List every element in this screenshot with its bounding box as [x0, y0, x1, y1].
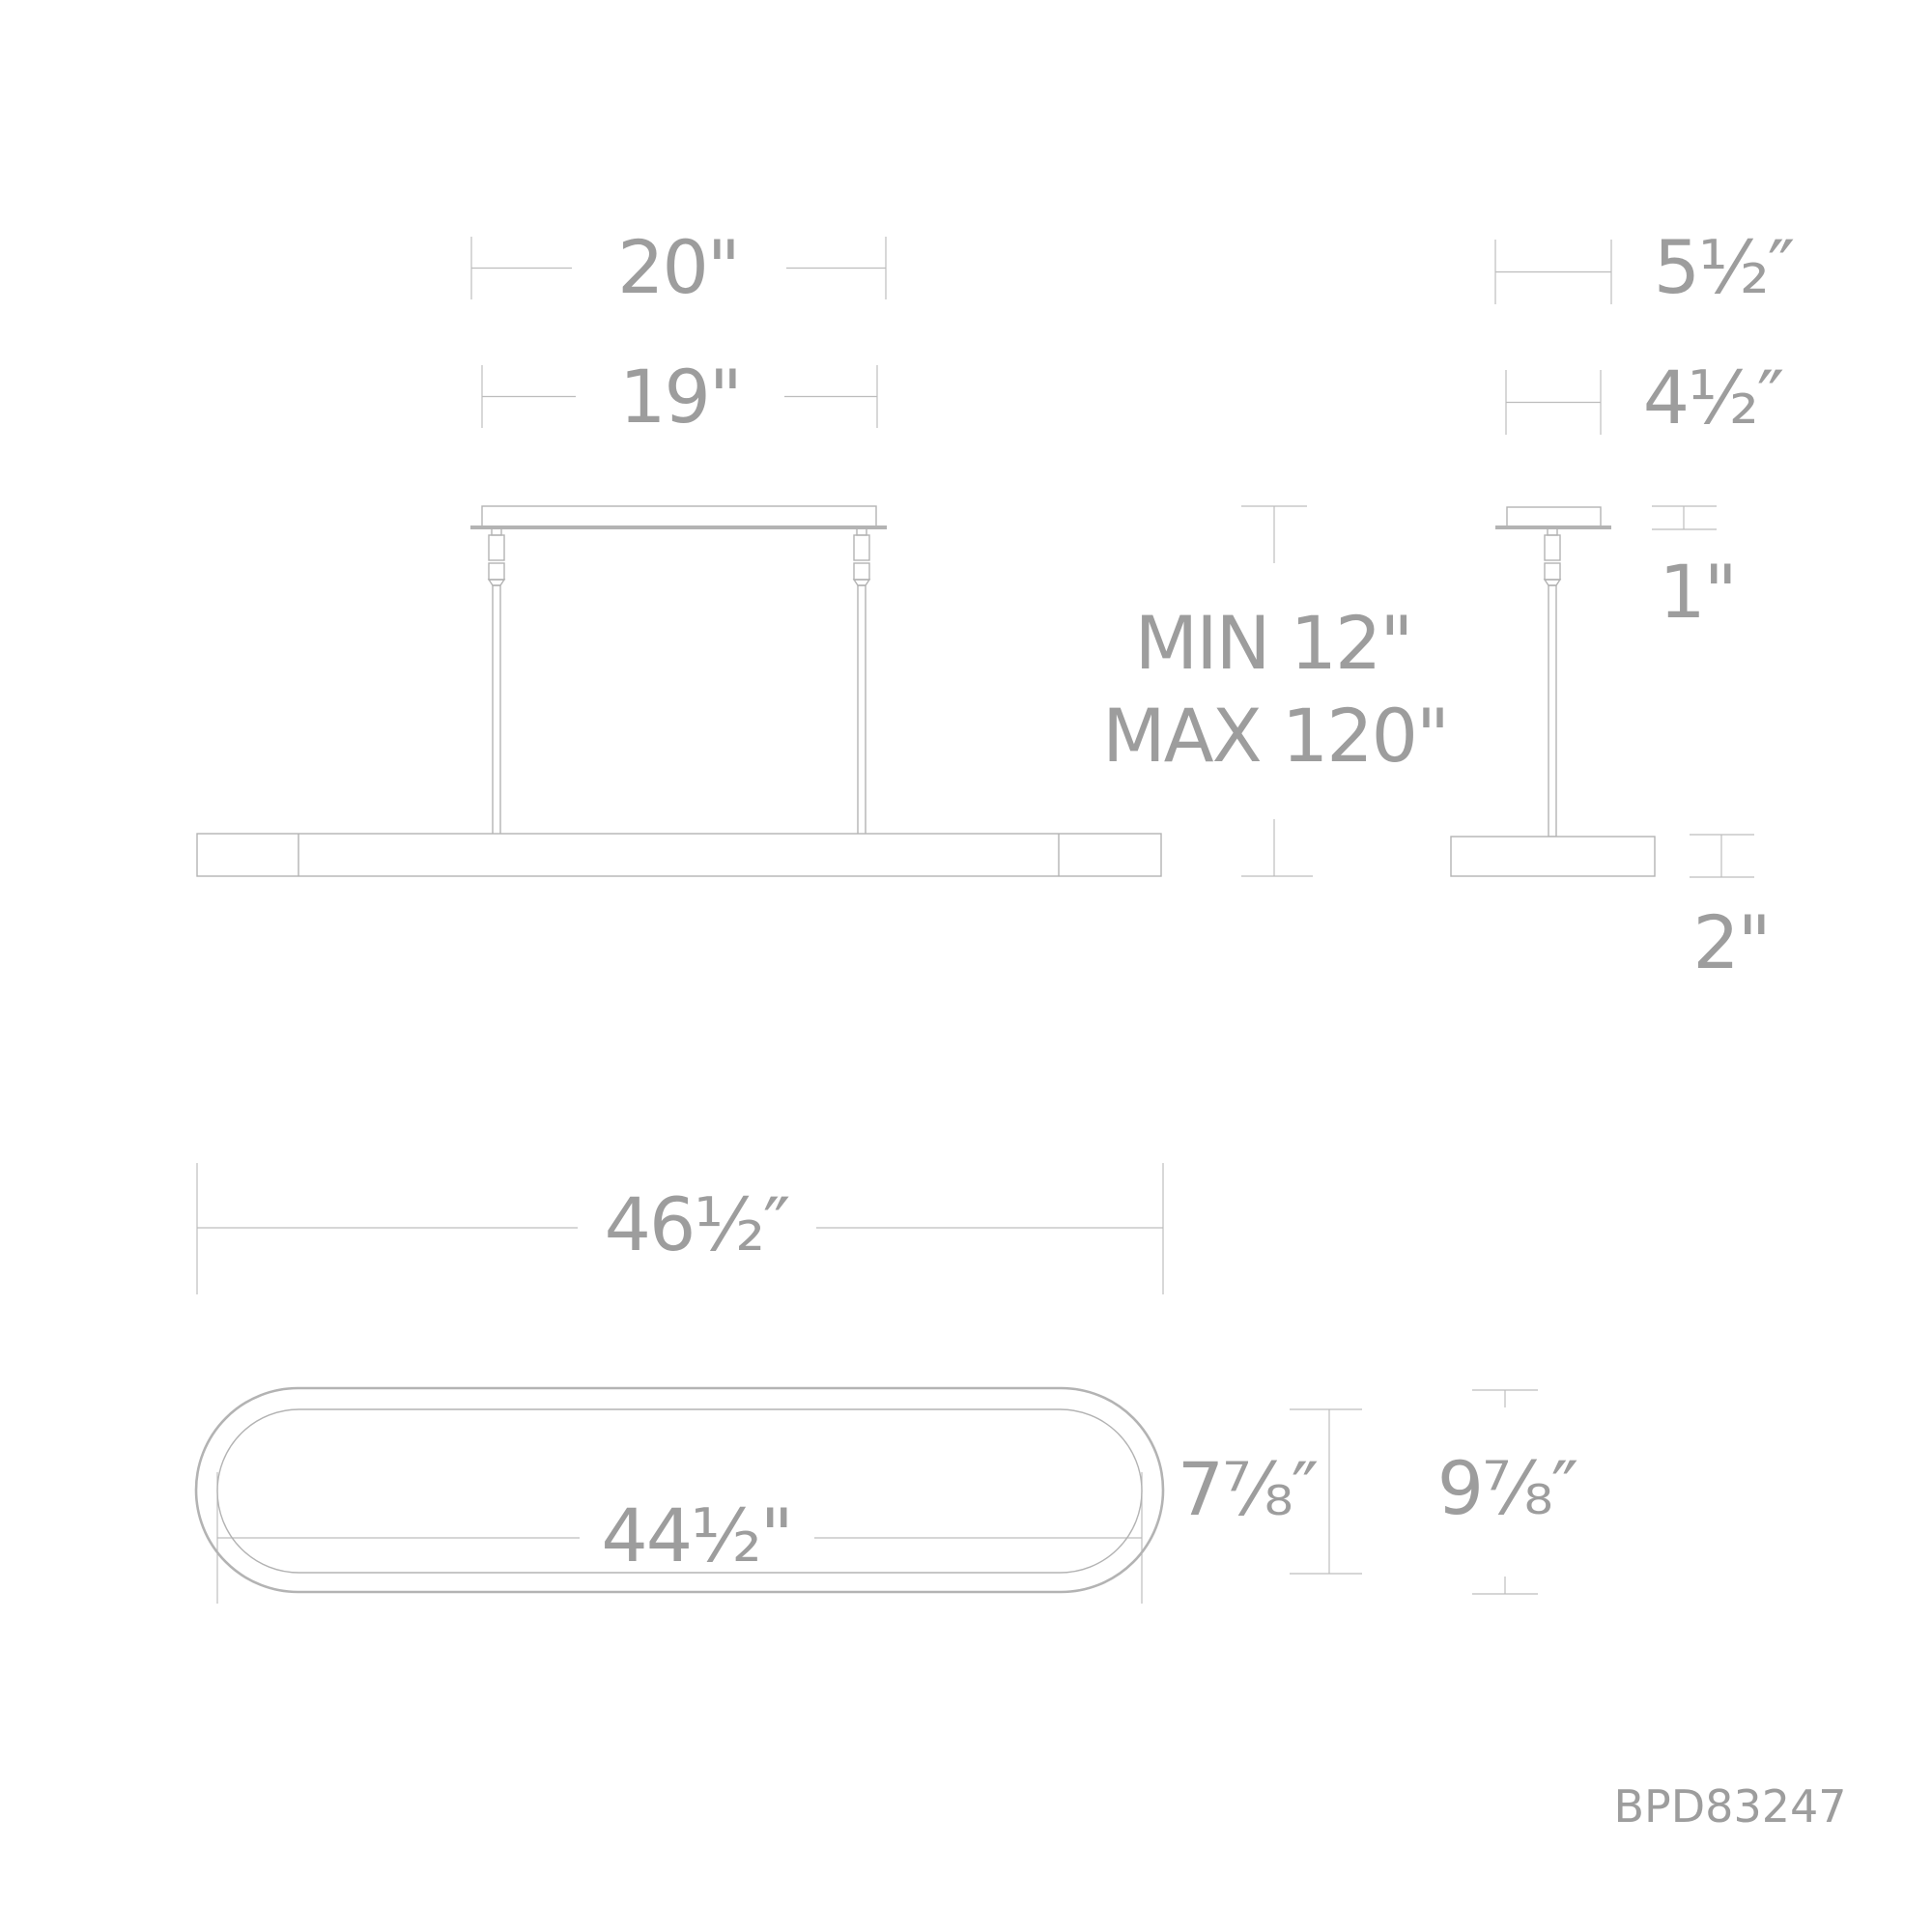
dim-label-inner-length: 44½" — [601, 1499, 791, 1573]
side-rod — [1545, 528, 1560, 837]
front-rod-left — [489, 528, 504, 837]
dim-label-suspension-min: MIN 12" — [1135, 607, 1412, 680]
side-fixture-body — [1451, 837, 1655, 876]
dim-label-body-height: 2" — [1692, 906, 1769, 980]
dim-label-outer-length: 46½″ — [605, 1188, 789, 1262]
diagram-canvas: 20" 19" 5½″ 4½″ 1" MIN 12" MAX 120" 2" 4… — [0, 0, 1932, 1932]
front-rod-right — [854, 528, 869, 837]
dim-label-suspension-max: MAX 120" — [1102, 699, 1448, 773]
side-canopy — [1507, 507, 1601, 526]
dim-suspension — [1241, 506, 1313, 876]
diagram-linework — [0, 0, 1932, 1932]
dim-label-canopy-width: 20" — [617, 231, 739, 304]
dim-5-5 — [1495, 240, 1611, 304]
front-fixture-bar — [197, 834, 1161, 876]
dim-label-side-canopy-width: 4½″ — [1643, 361, 1782, 435]
dim-label-plate-width: 5½″ — [1654, 231, 1793, 304]
dim-label-outer-width: 9⅞″ — [1437, 1452, 1577, 1525]
dim-1 — [1652, 506, 1717, 529]
dim-label-mount-width: 19" — [619, 360, 741, 434]
dim-2 — [1690, 835, 1754, 877]
dim-label-inner-width: 7⅞″ — [1178, 1453, 1317, 1526]
dim-4-5 — [1506, 370, 1601, 435]
top-view — [196, 1163, 1538, 1604]
front-canopy — [482, 506, 876, 526]
front-view — [197, 237, 1313, 876]
dim-label-canopy-height: 1" — [1659, 555, 1735, 629]
part-number: BPD83247 — [1613, 1784, 1846, 1829]
